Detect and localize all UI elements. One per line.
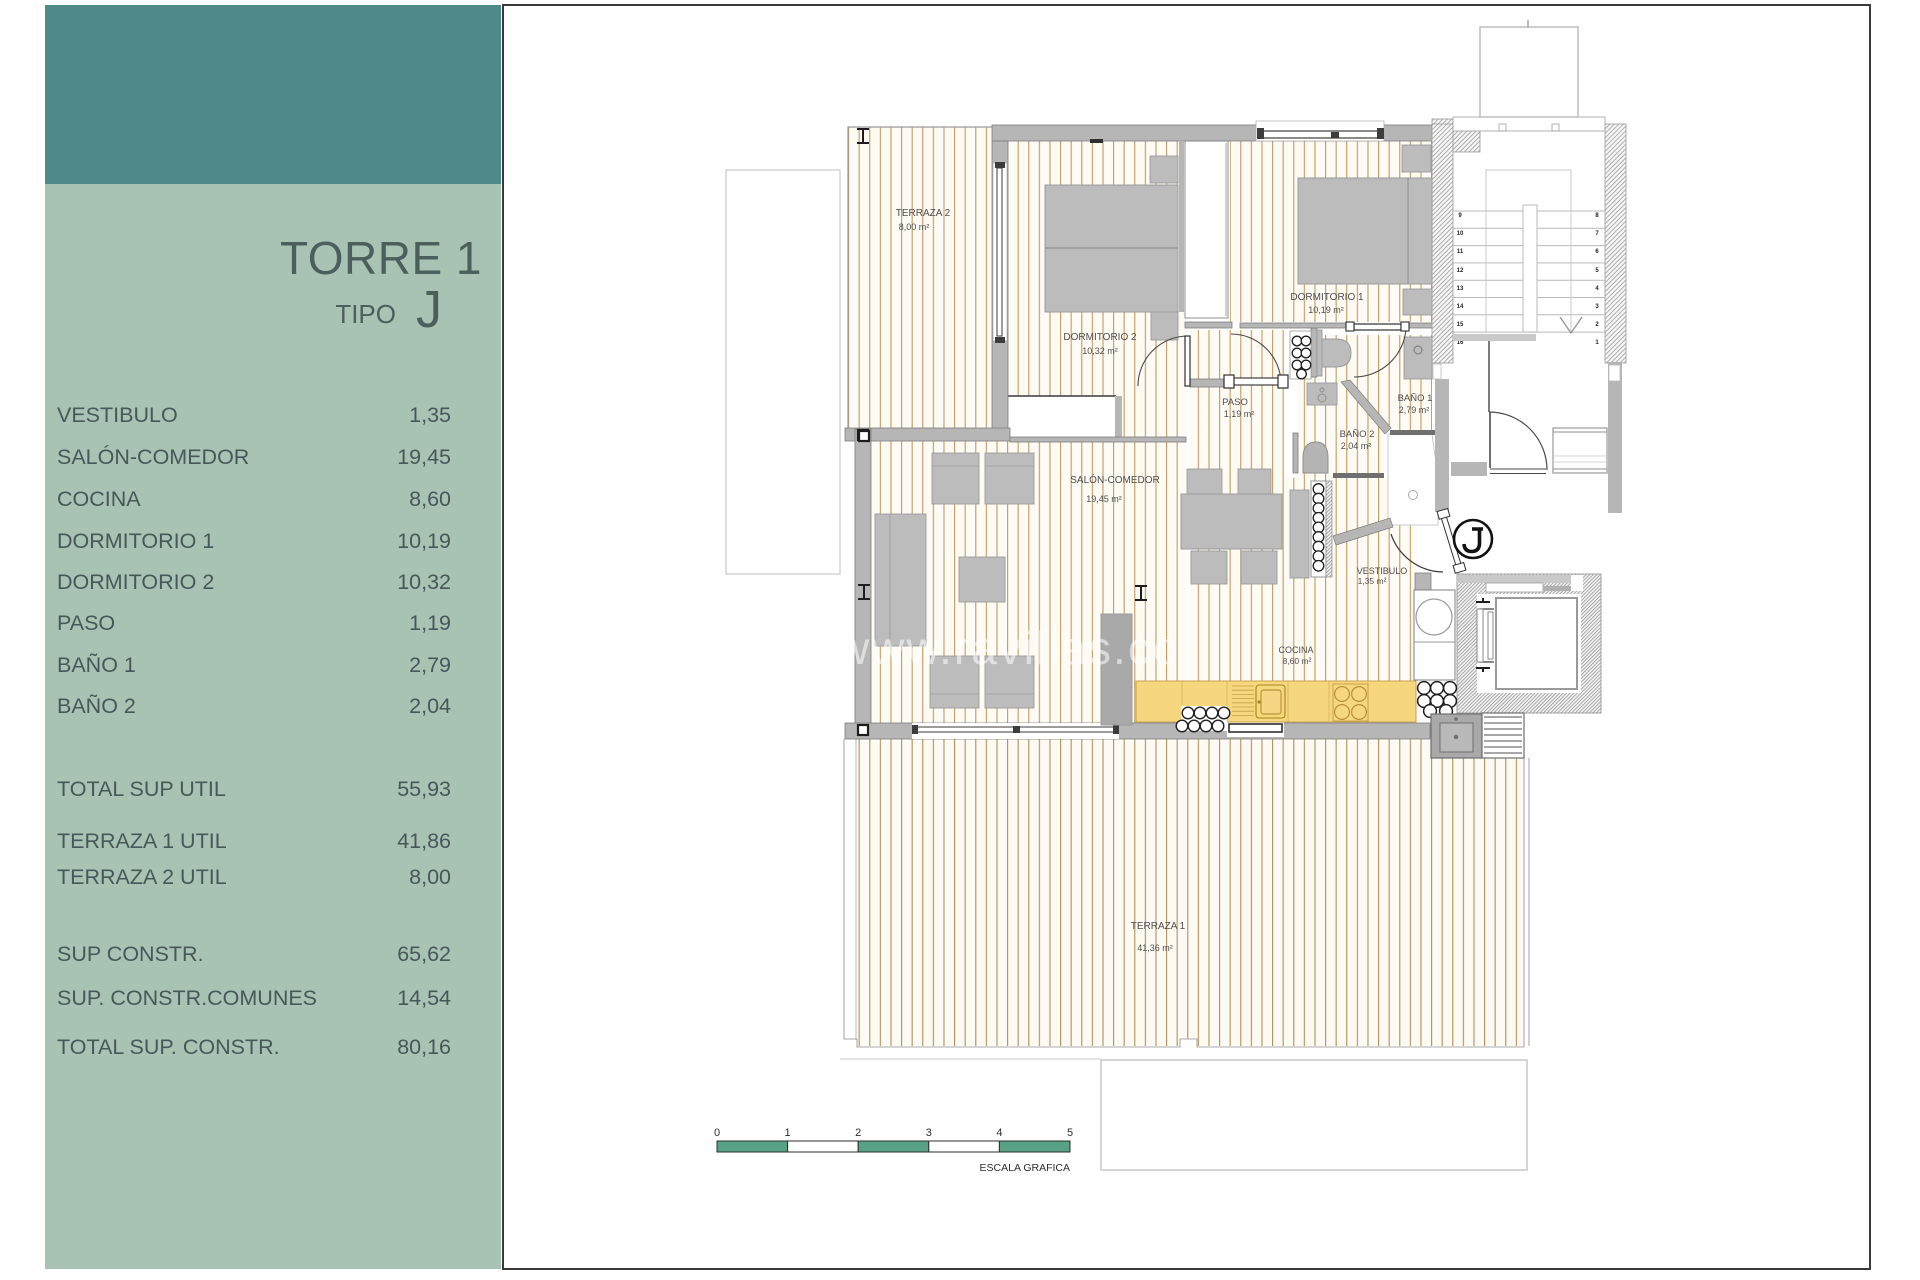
svg-text:ESCALA GRAFICA: ESCALA GRAFICA [980,1162,1070,1174]
svg-text:7: 7 [1595,231,1599,237]
svg-text:3: 3 [1595,304,1599,310]
svg-text:8: 8 [1595,213,1599,219]
svg-text:COCINA: COCINA [1278,645,1313,655]
svg-text:13: 13 [1457,286,1464,292]
svg-text:DORMITORIO 1: DORMITORIO 1 [1290,292,1364,303]
svg-text:TERRAZA 2: TERRAZA 2 [896,208,951,219]
svg-text:VESTIBULO: VESTIBULO [1357,566,1408,576]
svg-text:2,79 m²: 2,79 m² [1399,405,1430,415]
svg-text:9: 9 [1458,213,1462,219]
svg-text:10: 10 [1457,231,1464,237]
svg-text:PASO: PASO [1222,397,1248,408]
svg-text:1,35 m²: 1,35 m² [1358,576,1387,586]
svg-text:2: 2 [1595,322,1599,328]
svg-text:BAÑO 1: BAÑO 1 [1398,393,1433,404]
svg-text:11: 11 [1457,249,1464,255]
svg-text:BAÑO 2: BAÑO 2 [1340,429,1375,440]
svg-text:10,19 m²: 10,19 m² [1308,305,1344,315]
svg-text:8,60 m²: 8,60 m² [1283,656,1312,666]
svg-text:12: 12 [1457,268,1464,274]
svg-text:15: 15 [1457,322,1464,328]
svg-text:0: 0 [714,1127,720,1139]
svg-text:4: 4 [1595,286,1599,292]
svg-text:10,32 m²: 10,32 m² [1082,346,1118,356]
svg-text:2,04 m²: 2,04 m² [1341,441,1372,451]
svg-text:5: 5 [1595,268,1599,274]
svg-text:www.ravillas.co: www.ravillas.co [835,622,1180,674]
svg-text:1: 1 [785,1127,791,1139]
svg-text:2: 2 [855,1127,861,1139]
svg-text:1,19 m²: 1,19 m² [1224,409,1255,419]
svg-text:TERRAZA 1: TERRAZA 1 [1131,921,1186,932]
svg-text:6: 6 [1595,249,1599,255]
svg-text:8,00 m²: 8,00 m² [899,222,930,232]
svg-text:5: 5 [1067,1127,1073,1139]
svg-text:1: 1 [1595,340,1599,346]
svg-text:14: 14 [1457,304,1464,310]
svg-text:41,36 m²: 41,36 m² [1137,943,1173,953]
svg-text:3: 3 [926,1127,932,1139]
svg-text:4: 4 [996,1127,1002,1139]
svg-text:DORMITORIO 2: DORMITORIO 2 [1063,332,1137,343]
svg-text:SALÓN-COMEDOR: SALÓN-COMEDOR [1070,473,1159,486]
svg-text:19,45 m²: 19,45 m² [1086,494,1122,504]
